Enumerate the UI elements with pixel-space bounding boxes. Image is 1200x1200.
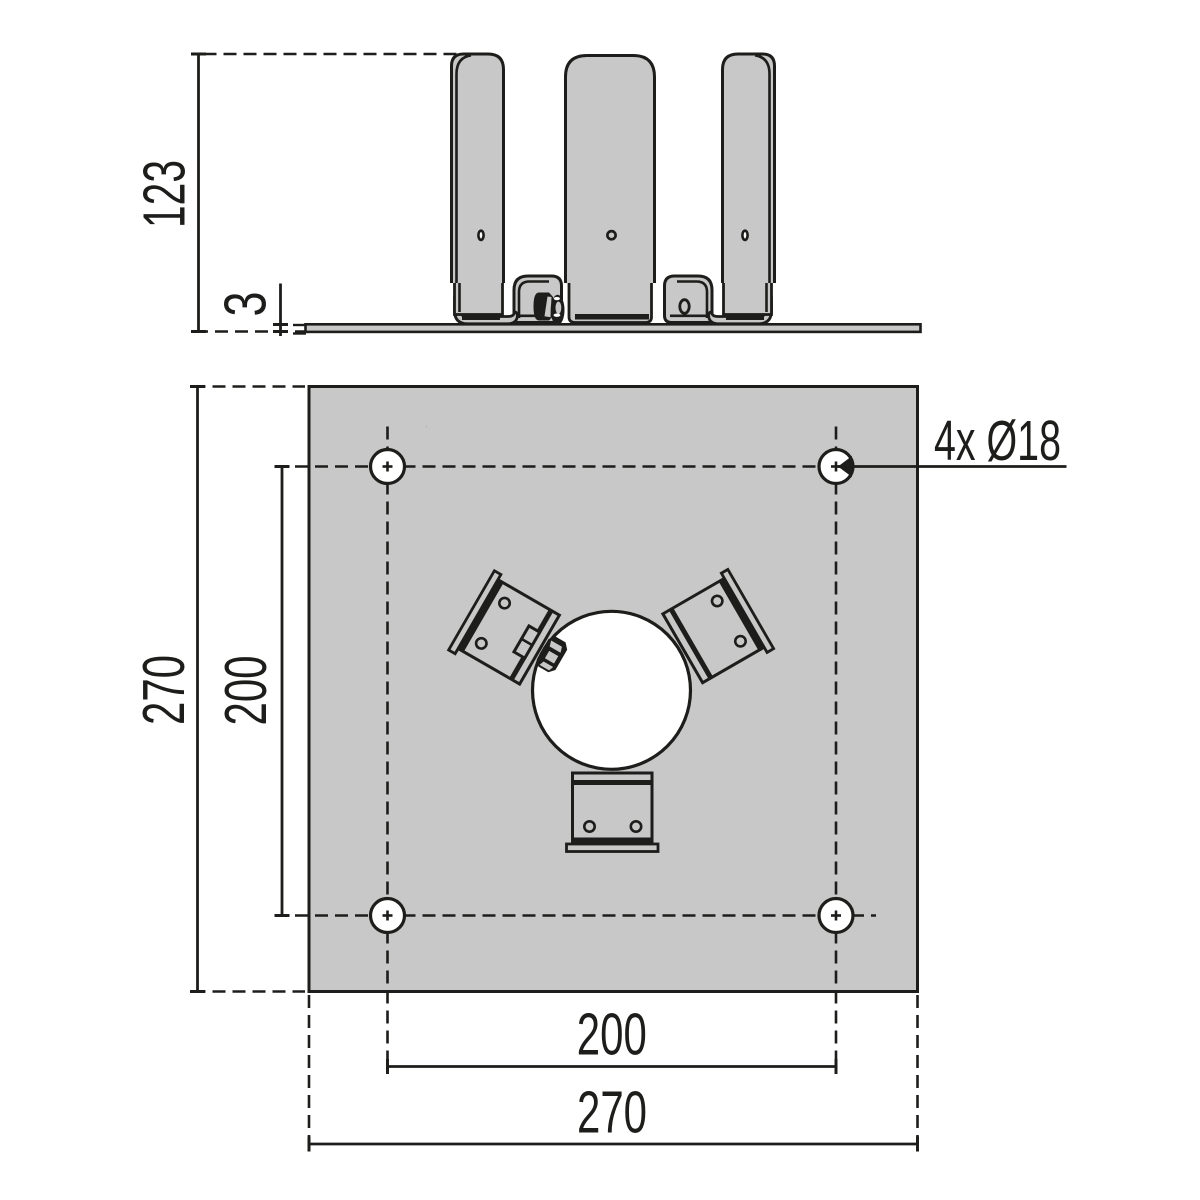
- svg-text:200: 200: [212, 656, 279, 726]
- svg-text:200: 200: [577, 1000, 647, 1067]
- svg-text:270: 270: [577, 1078, 647, 1145]
- svg-text:4x Ø18: 4x Ø18: [934, 409, 1061, 473]
- svg-text:3: 3: [212, 292, 279, 317]
- svg-text:123: 123: [131, 160, 198, 228]
- svg-text:270: 270: [130, 655, 197, 725]
